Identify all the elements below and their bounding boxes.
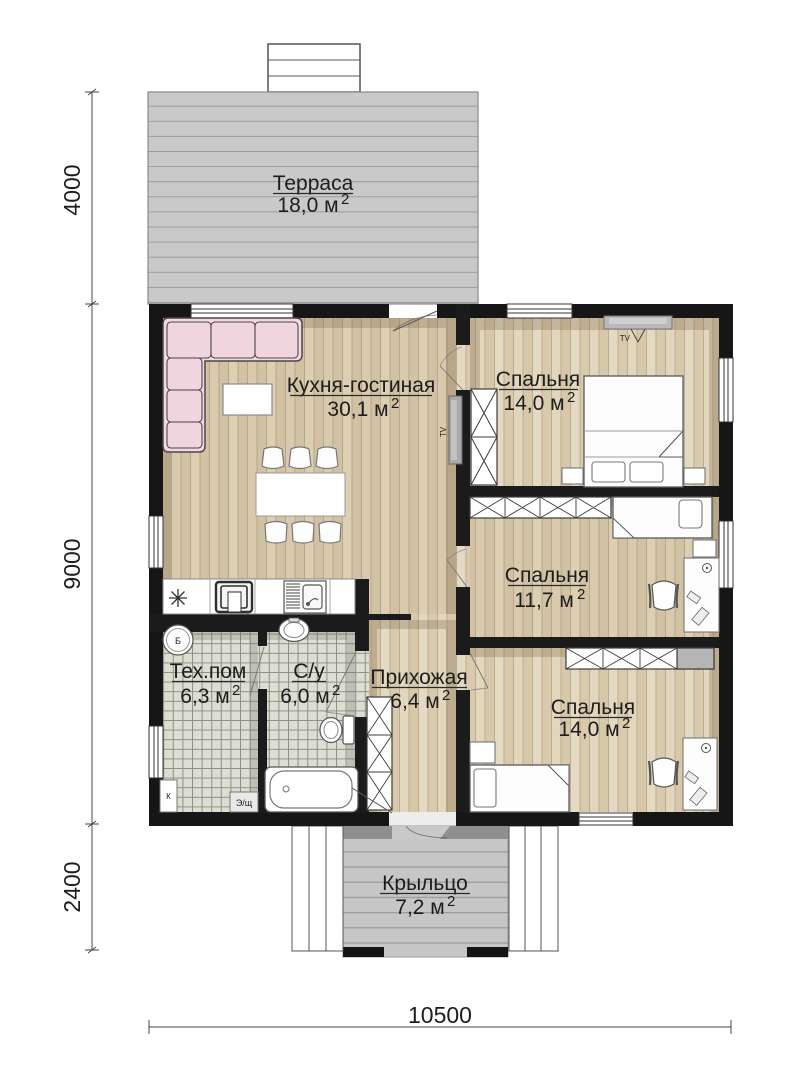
svg-text:С/у: С/у [293,660,325,683]
svg-text:18,0 м: 18,0 м [277,194,338,217]
svg-text:2: 2 [622,715,630,732]
svg-text:2: 2 [577,586,585,603]
svg-text:2: 2 [567,389,575,406]
svg-text:2: 2 [447,893,455,910]
svg-text:TV: TV [439,426,448,437]
svg-text:2: 2 [391,395,399,412]
svg-text:2: 2 [232,682,240,699]
svg-text:2: 2 [341,191,349,208]
svg-text:10500: 10500 [408,1002,472,1028]
svg-text:4000: 4000 [59,164,85,215]
svg-text:Б: Б [175,636,181,646]
svg-text:6,4 м: 6,4 м [390,690,439,713]
svg-text:Э/щ: Э/щ [236,798,253,808]
svg-text:7,2 м: 7,2 м [395,896,444,919]
svg-text:Кухня-гостиная: Кухня-гостиная [287,374,436,397]
svg-text:Прихожая: Прихожая [370,666,467,689]
svg-text:2: 2 [442,687,450,704]
svg-text:2: 2 [332,682,340,699]
svg-text:30,1 м: 30,1 м [327,398,388,421]
svg-text:Спальня: Спальня [496,368,580,391]
svg-text:14,0 м: 14,0 м [503,392,564,415]
svg-text:6,3 м: 6,3 м [180,685,229,708]
svg-text:2400: 2400 [59,861,85,912]
svg-text:6,0 м: 6,0 м [280,685,329,708]
svg-text:Тех.пом: Тех.пом [170,660,247,683]
svg-text:К: К [166,792,171,801]
svg-text:11,7 м: 11,7 м [514,589,574,612]
svg-text:14,0 м: 14,0 м [558,718,619,741]
svg-text:Спальня: Спальня [505,564,589,587]
svg-text:9000: 9000 [59,538,85,589]
svg-text:Крыльцо: Крыльцо [382,872,468,895]
svg-text:TV: TV [620,334,631,343]
